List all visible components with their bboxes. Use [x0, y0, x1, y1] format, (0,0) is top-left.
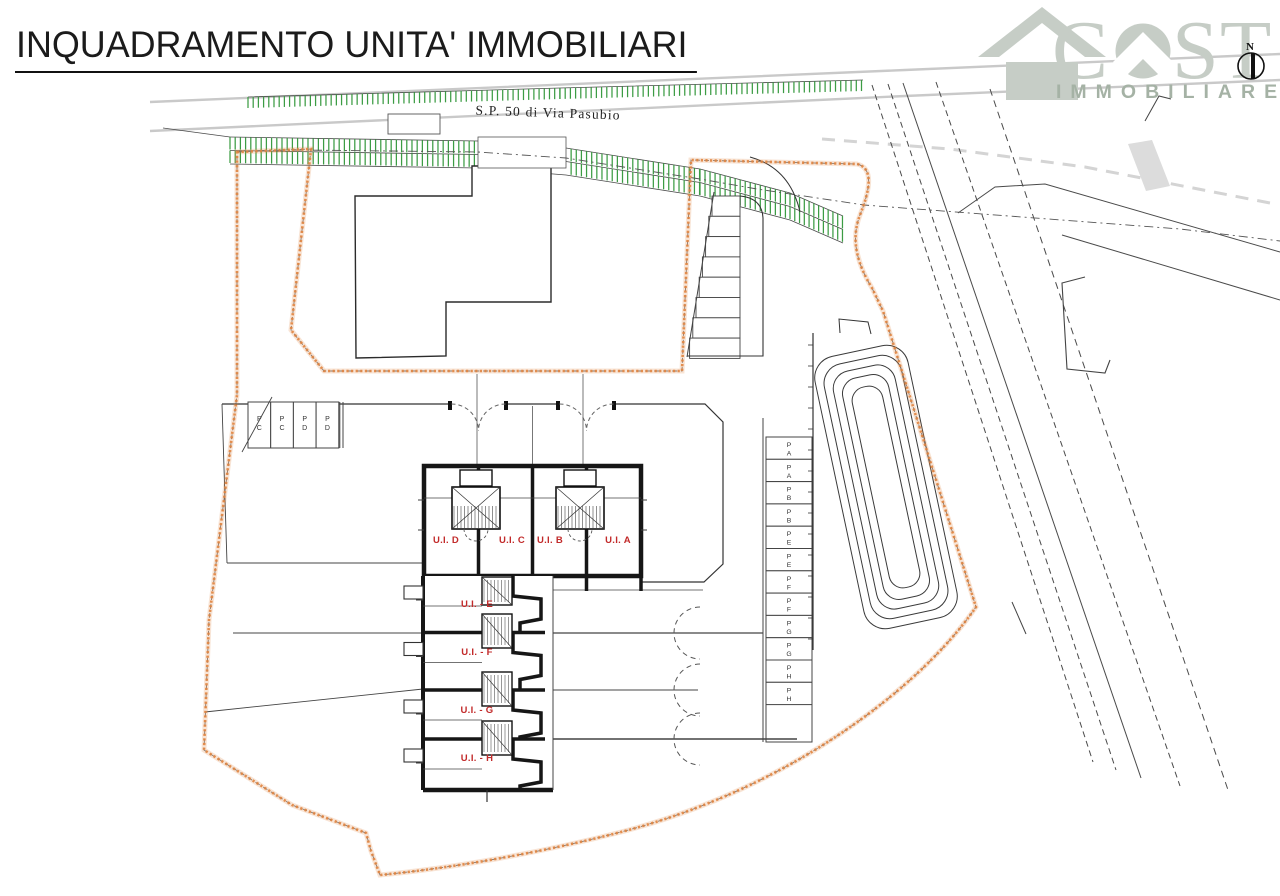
unit-label: U.I. - E [461, 599, 493, 610]
unit-label: U.I. - H [461, 753, 493, 764]
parking-stall-label: D [302, 425, 307, 432]
unit-label: U.I. C [499, 535, 525, 546]
parking-stall-label: D [325, 425, 330, 432]
unit-label: U.I. - F [461, 647, 492, 658]
parking-stall-label: P [280, 416, 285, 423]
parking-stall-label: P [787, 620, 792, 627]
parking-stall-label: P [787, 554, 792, 561]
parking-stall-label: P [787, 576, 792, 583]
parking-stall-label: E [787, 540, 792, 547]
site-plan-drawing: PCPCPDPDPAPAPBPBPEPEPFPFPGPGPHPHU.I. DU.… [0, 0, 1280, 896]
parking-stall-label: E [787, 562, 792, 569]
parking-stall-label: H [787, 696, 792, 703]
units-block-abcd [418, 466, 647, 591]
logo-subtitle: IMMOBILIARE [1056, 81, 1280, 103]
parking-stall-label: B [787, 495, 792, 502]
parking-stall-label: F [787, 584, 791, 591]
parking-stall-label: P [787, 487, 792, 494]
unit-label: U.I. D [433, 535, 459, 546]
existing-building [355, 166, 551, 358]
parking-stall-label: P [787, 687, 792, 694]
parking-stall-label: P [787, 464, 792, 471]
unit-label: U.I. A [605, 535, 631, 546]
parking-stall-label: P [787, 442, 792, 449]
parking-stall-label: P [787, 665, 792, 672]
cost-immobiliare-logo: C S T IMMOBILIARE [978, 4, 1280, 103]
top-right-stalls [687, 192, 763, 358]
parking-stall-label: A [787, 473, 792, 480]
parking-stall-label: F [787, 607, 791, 614]
parking-stall-label: G [786, 629, 791, 636]
parking-stall-label: G [786, 651, 791, 658]
parking-stall-label: B [787, 517, 792, 524]
parking-stall-label: P [787, 643, 792, 650]
parking-stall-label: P [302, 416, 307, 423]
site-plan-page: INQUADRAMENTO UNITA' IMMOBILIARI PCPCPDP… [0, 0, 1280, 896]
north-label: N [1246, 41, 1254, 53]
parking-stall-label: P [325, 416, 330, 423]
parking-stall-label: H [787, 674, 792, 681]
parking-stall-label: A [787, 451, 792, 458]
unit-label: U.I. - G [460, 705, 493, 716]
parking-stall-label: P [257, 416, 262, 423]
unit-label: U.I. B [537, 535, 563, 546]
parking-stall-label: C [257, 425, 262, 432]
courtyard-plate [553, 404, 797, 765]
parking-stall-label: P [787, 598, 792, 605]
logo-o-house-icon [1113, 24, 1173, 79]
ramp-contours [811, 319, 962, 633]
road-name-label: S.P. 50 di Via Pasubio [475, 102, 621, 122]
parking-stall-label: P [787, 509, 792, 516]
parking-stall-label: P [787, 531, 792, 538]
parking-stall-label: C [279, 425, 284, 432]
